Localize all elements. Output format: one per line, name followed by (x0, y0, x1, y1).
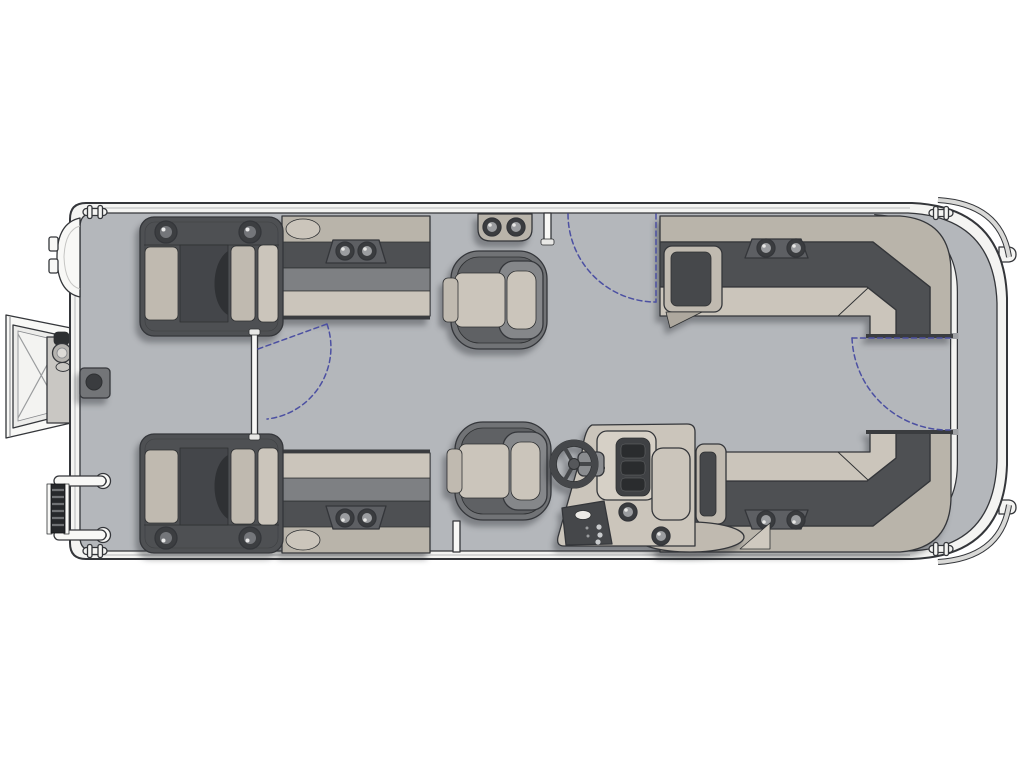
port-stern-lounger (140, 217, 283, 336)
stern-motor-pod (49, 218, 80, 297)
helm-switch-panel (562, 501, 612, 545)
boat-floorplan-figure (0, 0, 1024, 768)
helm-swivel-chair (447, 422, 551, 520)
port-swivel-chair (443, 251, 547, 349)
starboard-fence-post (453, 521, 460, 552)
rail-cupholder-pod (478, 214, 532, 241)
stern-ramp (6, 315, 72, 438)
helm-dashboard (597, 431, 656, 500)
floorplan-svg (0, 0, 1024, 768)
port-bench (282, 216, 430, 320)
starboard-bench (282, 450, 430, 554)
reboarding-ladder (47, 484, 69, 534)
table-pedestal-base (80, 368, 110, 398)
starboard-stern-lounger (140, 434, 283, 553)
console-armrest-pad (652, 448, 690, 520)
